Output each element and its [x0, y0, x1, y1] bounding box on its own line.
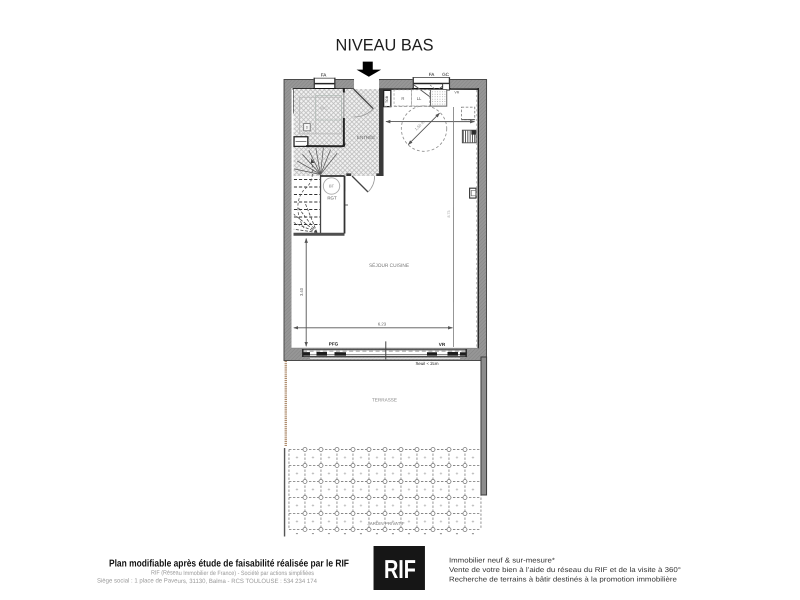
svg-text:PFG: PFG [329, 342, 339, 347]
svg-text:SÉJOUR CUISINE: SÉJOUR CUISINE [369, 262, 410, 269]
svg-text:6.23: 6.23 [378, 321, 387, 326]
svg-text:GC: GC [442, 72, 450, 77]
svg-text:8.73: 8.73 [447, 211, 451, 218]
svg-text:ENTRÉE: ENTRÉE [357, 135, 376, 140]
svg-text:NIVEAU BAS: NIVEAU BAS [336, 35, 434, 54]
svg-text:RIF: RIF [384, 554, 416, 584]
svg-text:BT: BT [329, 184, 335, 189]
svg-text:JARDIN PRIVATIF: JARDIN PRIVATIF [367, 521, 404, 526]
svg-text:LL: LL [417, 96, 422, 101]
svg-text:VR: VR [439, 342, 446, 347]
svg-text:Siège social : 1 place de Pave: Siège social : 1 place de Paveurs, 31130… [97, 578, 318, 585]
svg-text:RGT: RGT [327, 195, 337, 200]
svg-text:Immobilier neuf & sur-mesure*: Immobilier neuf & sur-mesure* [449, 557, 555, 565]
svg-text:3.40: 3.40 [299, 287, 304, 296]
svg-text:Seuil < 2cm: Seuil < 2cm [415, 361, 438, 366]
svg-text:FA: FA [321, 72, 328, 77]
svg-text:VR: VR [454, 91, 459, 95]
svg-text:RIF (Réseau Immobilier de Fra: RIF (Réseau Immobilier de France) - Soci… [151, 570, 314, 577]
svg-text:Plan modifiable après étude de: Plan modifiable après étude de faisabili… [109, 558, 349, 569]
svg-text:FA: FA [429, 72, 436, 77]
svg-text:Vente de votre bien à l’aide d: Vente de votre bien à l’aide du réseau d… [449, 566, 681, 574]
svg-text:TERRASSE: TERRASSE [372, 397, 397, 403]
svg-text:R: R [401, 96, 404, 101]
svg-text:WC: WC [320, 105, 327, 110]
svg-text:Recherche de terrains à bâtir: Recherche de terrains à bâtir destinés à… [449, 575, 677, 583]
svg-text:TGB: TGB [385, 95, 389, 103]
